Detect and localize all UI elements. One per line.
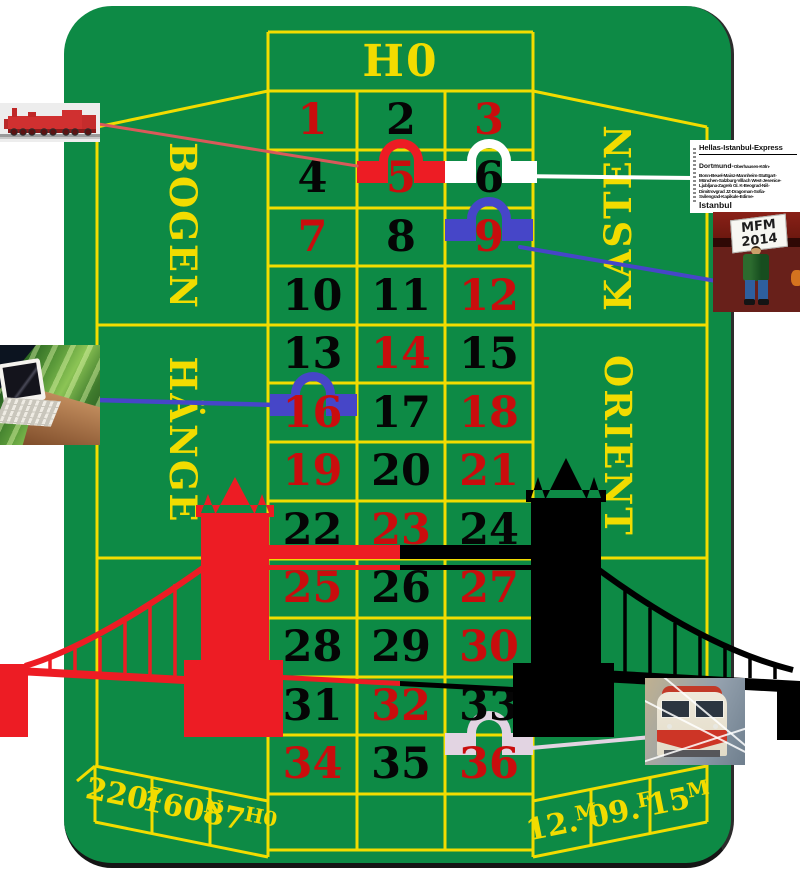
figurine-leg (758, 280, 768, 300)
electric-locomotive-photo (645, 678, 745, 765)
connector-blue-line-9 (520, 247, 716, 281)
connector-thistle-line (520, 737, 652, 749)
sign-route: Dortmund-Oberhausen-Köln- Bonn-Beuel-Mai… (699, 155, 797, 200)
loco-lamp (713, 724, 718, 729)
figurine-leg (745, 280, 755, 300)
mfm-2014-photo: MFM 2014 (713, 212, 800, 312)
connector-lines (86, 122, 716, 749)
laptop-keyboard (0, 397, 61, 426)
figurine-shoe (758, 299, 769, 305)
sign-side-microtext (693, 148, 696, 204)
background-figure (791, 270, 800, 286)
roulette-layout: H0 1 2 3 4 5 6 7 8 9 10 11 12 13 14 15 1… (0, 0, 800, 883)
steam-locomotive-photo (0, 103, 100, 142)
hellas-istanbul-sign: Hellas-Istanbul-Express Dortmund-Oberhau… (690, 140, 800, 213)
sign-destination: Istanbul (699, 200, 797, 210)
sign-title: Hellas-Istanbul-Express (699, 143, 797, 155)
tower-bridge-red-icon (0, 477, 400, 737)
sign-origin: Dortmund- (699, 163, 734, 170)
connector-blue-line-16 (95, 400, 276, 405)
connector-red-line (86, 122, 357, 166)
laptop-photo (0, 345, 100, 445)
laptop-display (3, 363, 42, 400)
figurine-torso (743, 254, 769, 281)
route-line: Oberhausen-Köln- (734, 164, 770, 169)
loco-lamp (667, 724, 672, 729)
route-line: Svilengrad-Kapikule-Edirne- (699, 194, 797, 199)
connector-white-line (513, 176, 692, 178)
figurine-shoe (744, 299, 755, 305)
steam-locomotive-icon (0, 103, 100, 142)
